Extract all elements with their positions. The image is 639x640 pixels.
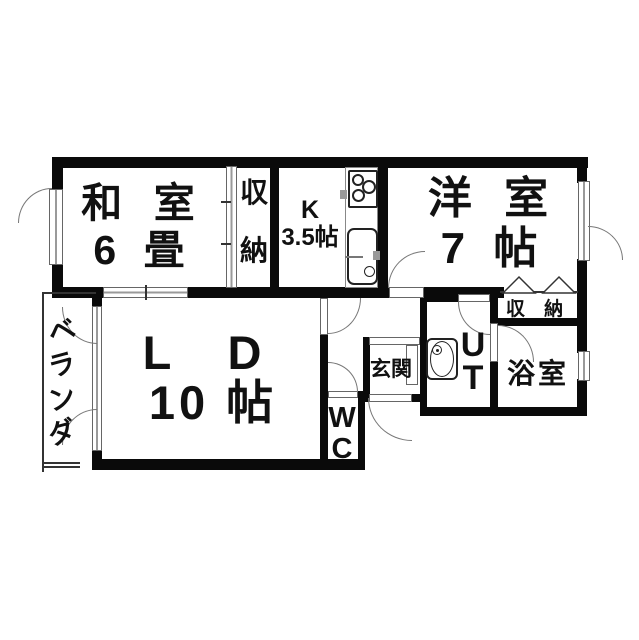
sink-faucet-knob (373, 251, 380, 260)
wall (52, 157, 588, 168)
ld-name: L D (128, 328, 298, 378)
doorway-yoshitsu (389, 287, 424, 298)
doorway-utility (458, 294, 490, 302)
kitchen-name: K (268, 197, 352, 224)
doorway-wc (328, 391, 358, 398)
room-label-closet-washitsu: 収 納 (237, 178, 271, 266)
stove-icon (348, 170, 378, 208)
wall (378, 157, 388, 298)
room-label-closet-yoshitsu: 収 納 (496, 294, 580, 321)
yoshitsu-size: 7 帖 (408, 224, 578, 274)
room-label-washitsu: 和 室 6 畳 (58, 180, 228, 274)
wall (187, 287, 389, 298)
veranda-edge (43, 462, 80, 464)
wall (427, 294, 458, 302)
floor-plan: 和 室 6 畳 収 納 K 3.5帖 洋 室 7 帖 収 納 浴室 U T W … (0, 0, 639, 640)
washitsu-name: 和 室 (58, 180, 228, 227)
wall (412, 394, 421, 402)
room-label-wc: W C (324, 403, 360, 465)
door-arc-living (328, 298, 361, 334)
doorway-living (320, 298, 328, 335)
veranda-edge (43, 466, 80, 468)
door-arc-front-door (368, 398, 412, 441)
sliding-door-tick (145, 285, 147, 300)
ld-size: 10 帖 (128, 378, 298, 428)
door-arc-wc (328, 362, 358, 392)
washbasin-icon (426, 338, 458, 380)
wall (420, 407, 587, 416)
genkan-step (369, 337, 420, 345)
room-label-utility: U T (455, 329, 491, 395)
wall (320, 287, 328, 298)
room-label-kitchen: K 3.5帖 (268, 197, 352, 251)
door-arc-washitsu-window (18, 188, 52, 223)
room-label-bathroom: 浴室 (496, 352, 580, 392)
kitchen-size: 3.5帖 (268, 224, 352, 251)
room-label-veranda: ベ ラ ン ダ (45, 314, 79, 450)
wall (577, 157, 587, 183)
room-label-living-dining: L D 10 帖 (128, 328, 298, 428)
room-label-yoshitsu: 洋 室 7 帖 (408, 174, 578, 274)
washitsu-size: 6 畳 (58, 227, 228, 274)
room-label-genkan: 玄関 (364, 353, 418, 383)
yoshitsu-name: 洋 室 (408, 174, 578, 224)
door-arc-yoshitsu-window (588, 226, 623, 260)
bifold-door-icon (499, 275, 579, 294)
